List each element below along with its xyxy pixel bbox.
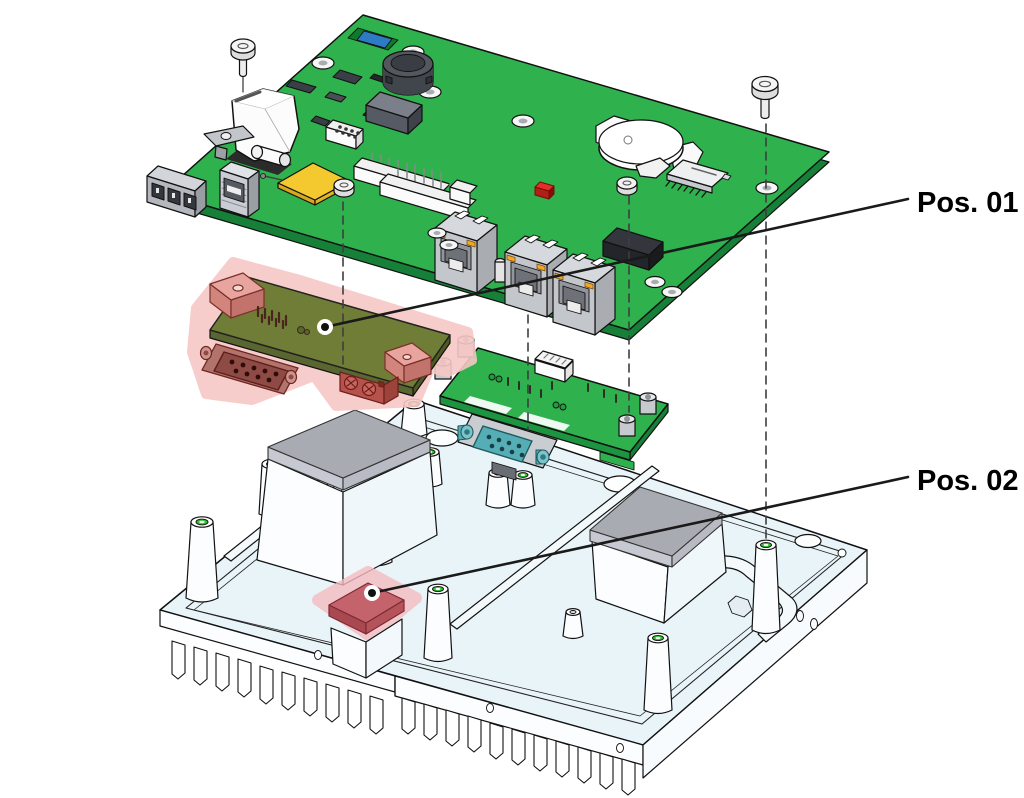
usb-connector bbox=[220, 162, 259, 217]
pos01-marker-dot bbox=[321, 323, 329, 331]
pos01-label: Pos. 01 bbox=[917, 187, 1019, 219]
serial-interface-module-pos01 bbox=[192, 262, 472, 406]
screw-top-right bbox=[752, 77, 778, 119]
screw-left-mid bbox=[334, 179, 354, 197]
diagram-page: Pos. 01 Pos. 02 bbox=[0, 0, 1024, 798]
pos02-marker-dot bbox=[368, 589, 376, 597]
chassis-hole bbox=[795, 535, 821, 548]
exploded-assembly-diagram: Pos. 01 Pos. 02 bbox=[0, 0, 1024, 798]
chassis-hole bbox=[426, 430, 458, 446]
screw-top-left bbox=[231, 39, 255, 92]
rj45-port-1 bbox=[435, 211, 497, 293]
buzzer bbox=[383, 51, 433, 95]
pos02-label: Pos. 02 bbox=[917, 465, 1019, 497]
screw-mid bbox=[617, 177, 637, 195]
